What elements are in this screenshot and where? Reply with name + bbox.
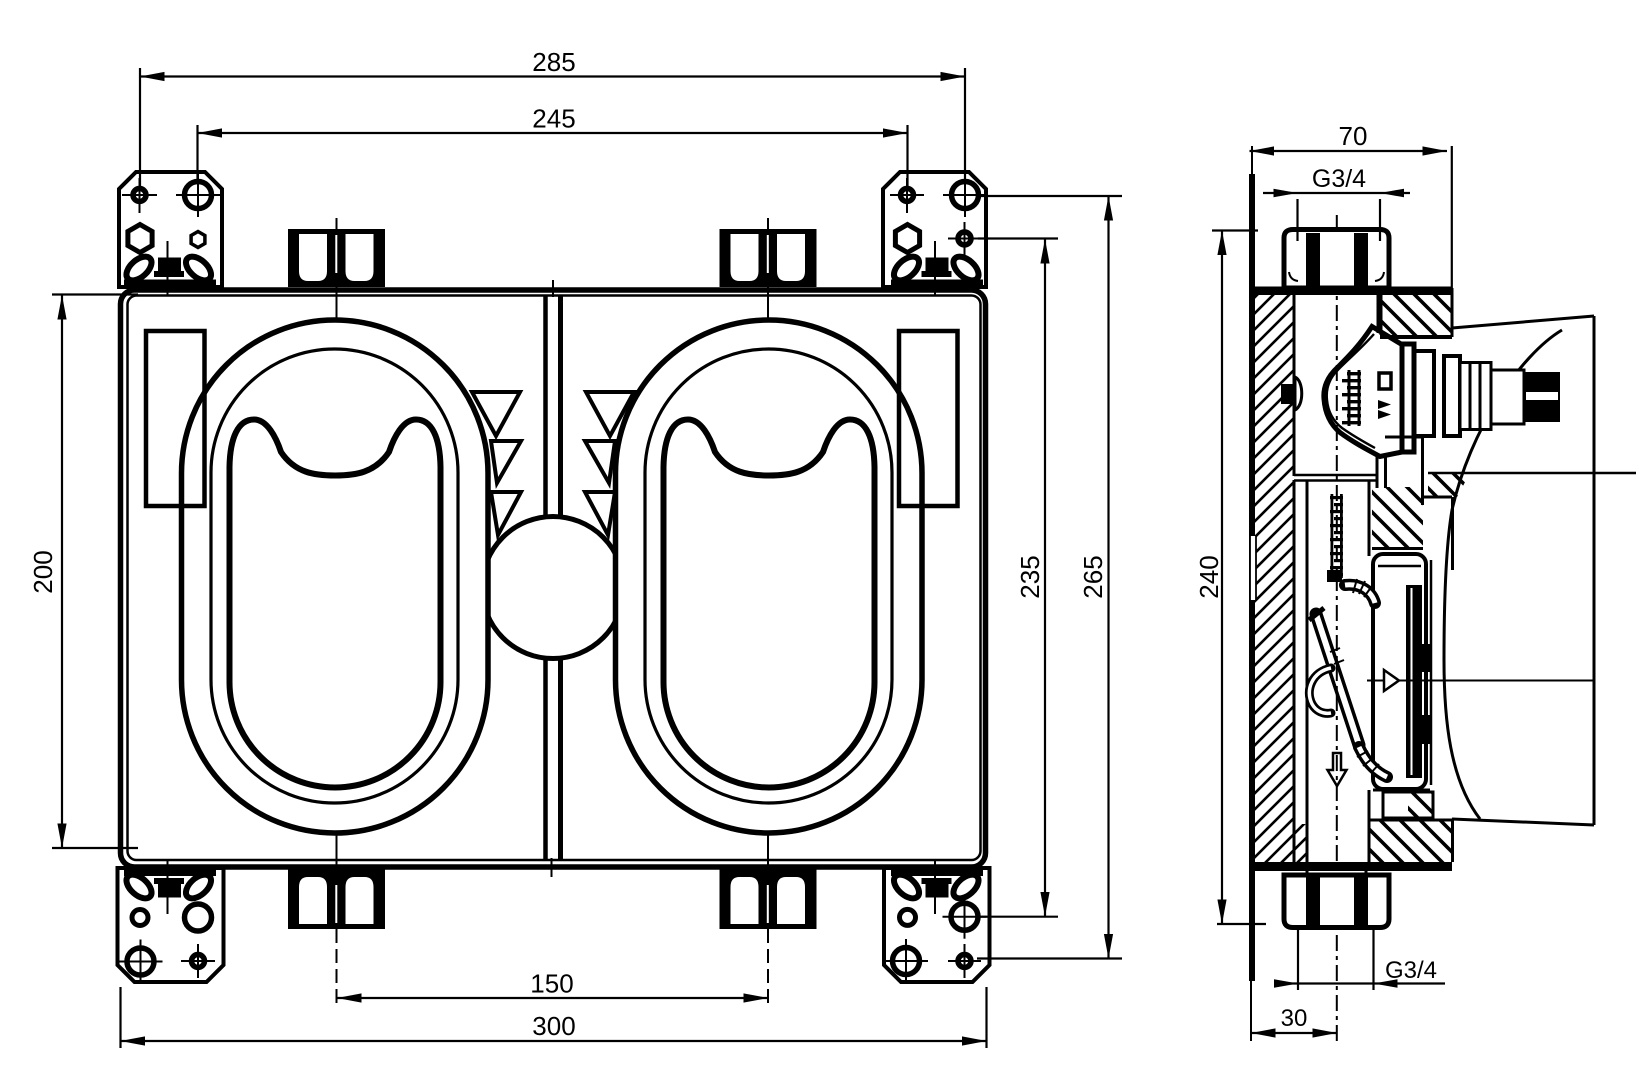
svg-text:150: 150 bbox=[530, 969, 573, 999]
svg-text:240: 240 bbox=[1194, 555, 1224, 598]
svg-text:265: 265 bbox=[1078, 555, 1108, 598]
svg-text:70: 70 bbox=[1339, 121, 1368, 151]
svg-text:G3/4: G3/4 bbox=[1312, 165, 1366, 193]
svg-text:300: 300 bbox=[532, 1011, 575, 1041]
svg-text:285: 285 bbox=[532, 47, 575, 77]
svg-text:G3/4: G3/4 bbox=[1385, 957, 1437, 984]
svg-text:30: 30 bbox=[1281, 1005, 1308, 1032]
svg-text:245: 245 bbox=[532, 104, 575, 134]
svg-text:235: 235 bbox=[1015, 555, 1045, 598]
svg-text:200: 200 bbox=[28, 550, 58, 593]
